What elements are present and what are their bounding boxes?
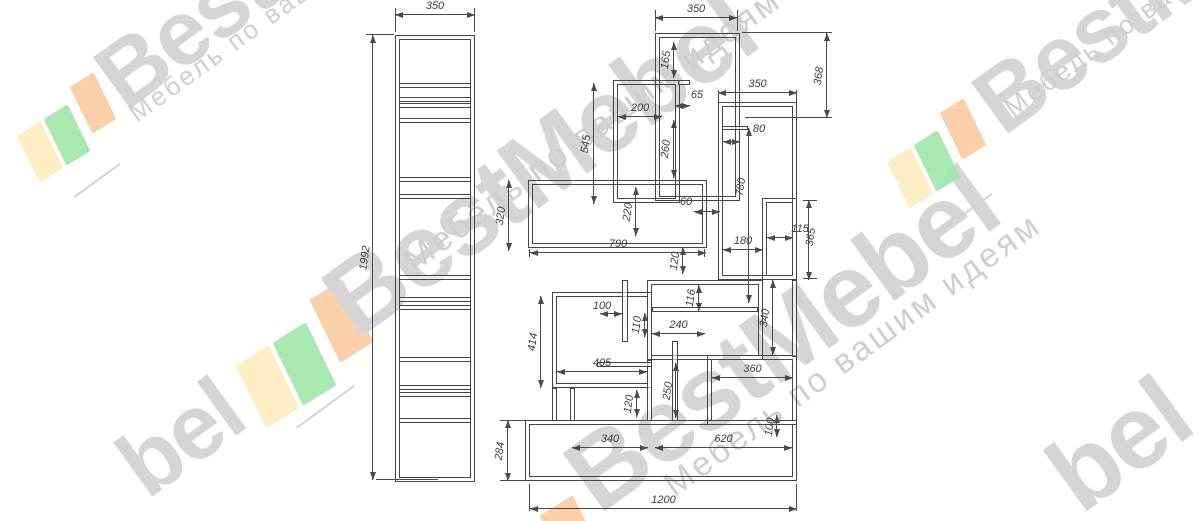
dim-label-60: 60 [680,196,692,208]
dim-arrowhead [538,380,544,388]
shelf-line [399,392,471,397]
dim-arrowhead [655,445,663,451]
dim-arrowhead [694,209,702,215]
dim-arrowhead [698,250,706,256]
shelf-line [399,97,471,102]
dim-label-320: 320 [494,206,508,226]
dim-arrowhead [395,12,403,18]
dim-arrowhead [671,42,677,50]
dim-arrowhead [680,266,686,274]
dim-arrowhead [506,243,512,251]
dim-label-405: 405 [593,357,611,369]
dim-arrowhead [530,506,538,512]
dim-arrowhead [697,331,705,337]
dim-label-790: 790 [609,238,627,250]
extension-line [366,34,394,35]
dim-arrowhead [785,375,793,381]
shelf-line [399,177,471,182]
extension-line [742,32,832,33]
dim-arrowhead [633,228,639,236]
dim-line-368 [826,33,827,118]
dim-label-240: 240 [669,319,687,331]
dim-arrowhead [712,209,720,215]
dim-label-116: 116 [684,288,698,307]
dim-label-110: 110 [630,315,644,334]
dim-arrowhead [806,200,812,208]
panel-wall [552,388,557,421]
dim-label-1200: 1200 [651,494,675,506]
dim-line-360 [712,377,793,378]
shelf-line [722,126,748,130]
dim-line-340 [772,280,773,355]
dim-arrowhead [618,114,626,120]
dim-arrowhead [673,363,679,371]
dim-line-350 [718,92,797,93]
extension-line [737,10,738,31]
dim-arrowhead [671,70,677,78]
dim-arrowhead [557,369,565,375]
dim-arrowhead [755,247,763,253]
dim-arrowhead [785,235,793,241]
dim-arrowhead [652,331,660,337]
dim-arrowhead [673,410,679,418]
dim-arrowhead [633,187,639,195]
shelf-box-frame [525,420,797,481]
dim-line-284 [507,420,508,481]
shelf-line [678,80,690,85]
shelf-line [399,297,471,302]
shelf-box-frame [647,280,763,360]
dim-arrowhead [746,295,752,303]
dim-arrowhead [824,33,830,41]
dim-arrowhead [682,103,690,109]
dim-arrowhead [614,311,622,317]
dim-label-200: 200 [631,102,649,114]
dim-label-414: 414 [526,332,540,352]
dim-arrowhead [789,90,797,96]
shelf-line [399,83,471,88]
dim-line-1992 [372,35,373,480]
dim-arrowhead [770,347,776,355]
dim-label-180: 180 [734,235,752,247]
dim-arrowhead [770,280,776,288]
shelf-line [399,103,471,108]
dim-line-414 [540,296,541,388]
dim-label-120: 120 [622,394,636,414]
dim-label-350: 350 [426,0,444,12]
shelf-line [399,357,471,362]
dim-label-1992: 1992 [357,245,372,271]
shelf-line [399,275,471,280]
dim-label-545: 545 [579,134,593,154]
dim-label-165: 165 [659,50,673,70]
dim-label-284: 284 [493,441,507,461]
shelf-line [399,418,471,423]
dim-line-340 [572,447,648,448]
extension-line [376,479,438,480]
panel-wall [792,280,797,357]
dim-arrowhead [505,473,511,481]
dim-arrowhead [530,250,538,256]
dim-line-1200 [530,508,797,509]
dim-label-350: 350 [748,78,766,90]
dim-label-220: 220 [621,202,635,222]
dim-arrowhead [639,369,647,375]
dim-arrowhead [712,375,720,381]
dim-arrowhead [505,420,511,428]
dim-label-340: 340 [601,433,619,445]
dim-line-405 [557,371,647,372]
dim-arrowhead [538,296,544,304]
dim-label-100: 100 [763,417,777,437]
extension-line [395,8,396,32]
dim-line-350 [395,14,475,15]
dim-arrowhead [370,35,376,43]
dim-arrowhead [732,139,740,145]
dim-line-620 [655,447,792,448]
dim-arrowhead [696,303,702,311]
panel-wall [570,388,575,421]
dim-arrowhead [572,445,580,451]
dim-arrowhead [718,90,726,96]
dim-arrowhead [671,120,677,128]
dim-label-368: 368 [812,66,826,86]
dim-arrowhead [640,445,648,451]
dim-arrowhead [655,15,663,21]
dim-arrowhead [824,110,830,118]
dim-arrowhead [634,409,640,417]
dim-label-65: 65 [691,89,703,101]
dim-arrowhead [806,272,812,280]
shelf-line [399,194,471,199]
dim-arrowhead [591,196,597,204]
dim-arrowhead [642,329,648,337]
shelf-line [399,118,471,123]
dim-label-340: 340 [758,308,772,328]
shelf-line [399,385,471,390]
dim-arrowhead [591,83,597,91]
dim-label-80: 80 [753,123,765,135]
extension-line [745,117,832,118]
dim-arrowhead [729,15,737,21]
dim-arrowhead [506,180,512,188]
shelf-line [652,307,758,312]
panel-wall [647,360,652,421]
dim-line-320 [508,180,509,251]
dim-arrowhead [723,247,731,253]
dim-arrowhead [723,139,731,145]
extension-line [474,8,475,32]
dim-label-100: 100 [593,300,611,312]
dim-arrowhead [654,114,662,120]
dim-line-545 [593,83,594,204]
dim-label-780: 780 [734,177,748,197]
dim-label-360: 360 [743,363,761,375]
technical-drawing-layer: 3501992 35016536835065200805452607803206… [0,0,1200,521]
dim-label-250: 250 [661,381,675,401]
dim-label-620: 620 [714,433,732,445]
extension-line [655,10,656,31]
blueprint-canvas: BestMebelМебель по вашим идеямBestMebelМ… [0,0,1200,521]
dim-arrowhead [767,235,775,241]
shelf-line [399,305,471,310]
panel-wall [622,280,628,342]
dim-arrowhead [370,472,376,480]
dim-arrowhead [671,170,677,178]
dim-line-350 [655,17,737,18]
dim-arrowhead [784,445,792,451]
dim-label-120: 120 [668,251,682,271]
dim-label-350: 350 [687,3,705,15]
dim-arrowhead [746,128,752,136]
dim-label-260: 260 [659,139,673,159]
dim-line-780 [748,128,749,303]
dim-label-365: 365 [804,227,818,247]
dim-arrowhead [789,506,797,512]
